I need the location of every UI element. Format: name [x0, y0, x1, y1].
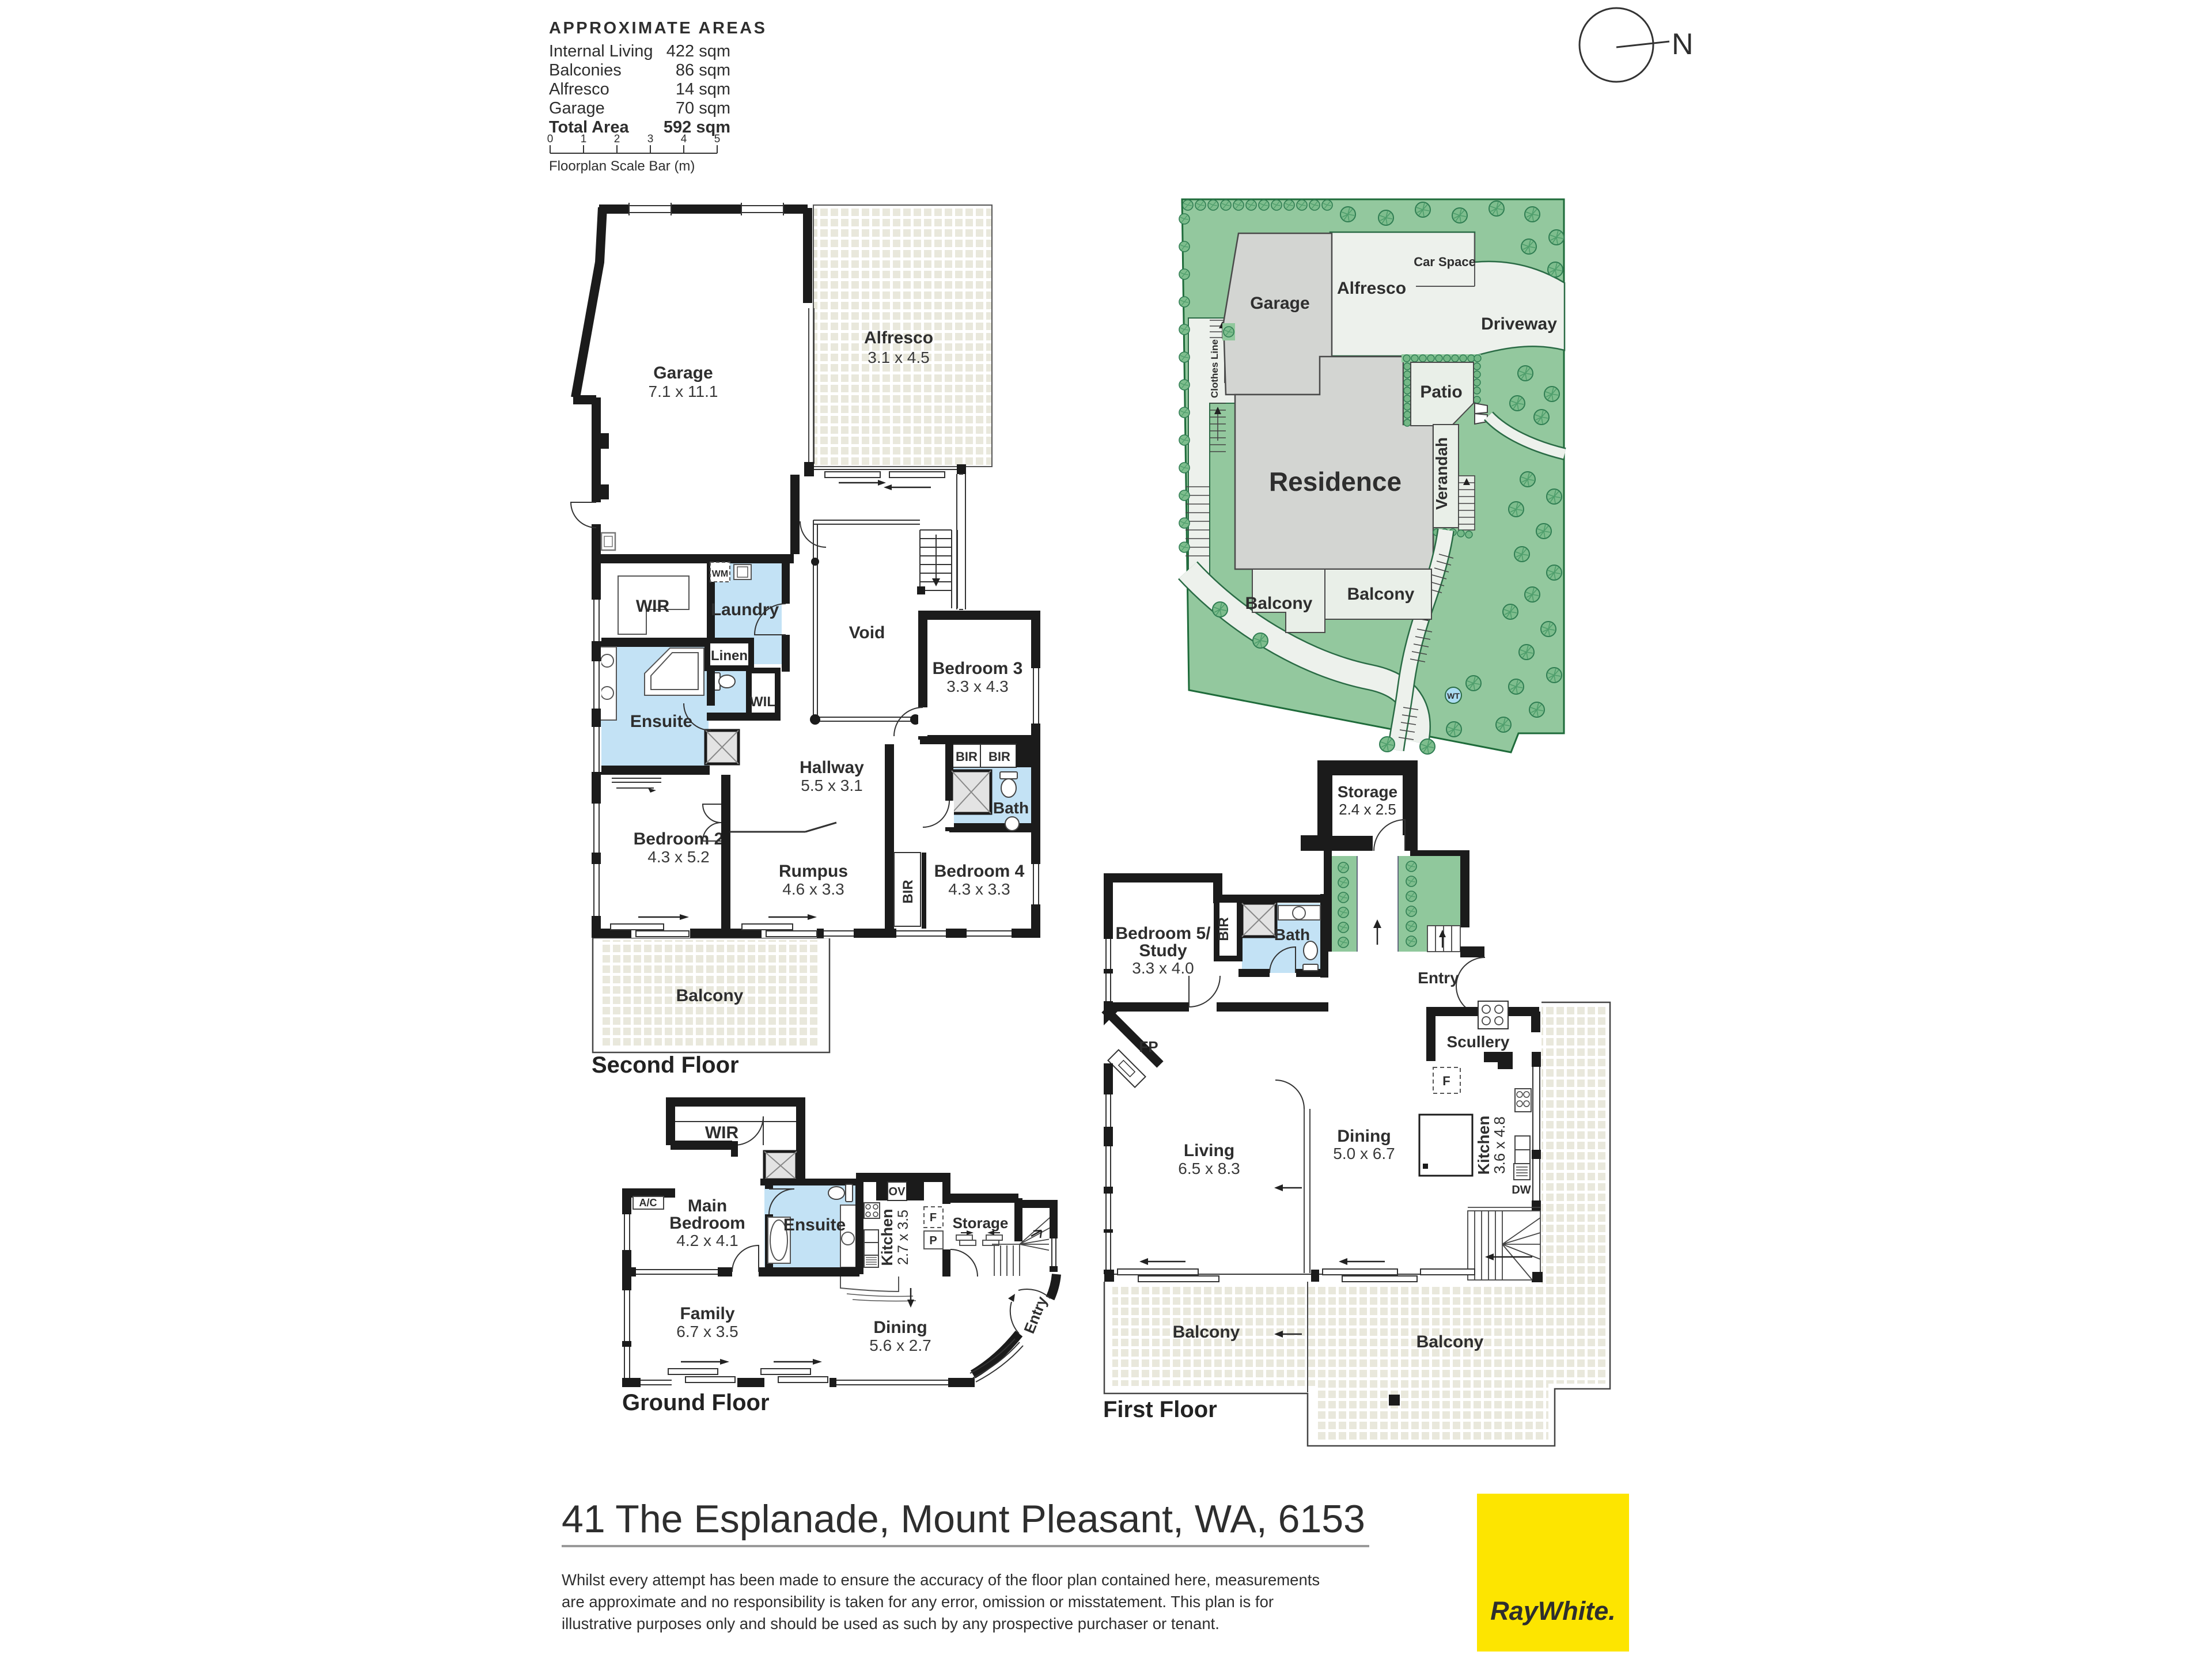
svg-text:Hallway: Hallway — [800, 758, 864, 777]
svg-text:P: P — [929, 1234, 937, 1247]
svg-text:Bedroom: Bedroom — [669, 1214, 745, 1233]
svg-text:Rumpus: Rumpus — [779, 862, 848, 881]
svg-text:592 sqm: 592 sqm — [664, 118, 730, 137]
svg-text:422 sqm: 422 sqm — [666, 42, 730, 60]
svg-text:Void: Void — [849, 623, 885, 642]
svg-text:Ground Floor: Ground Floor — [622, 1390, 770, 1415]
svg-text:Balcony: Balcony — [1347, 585, 1415, 604]
svg-text:F: F — [930, 1211, 937, 1224]
svg-text:Storage: Storage — [1338, 783, 1397, 801]
svg-text:WT: WT — [1447, 691, 1460, 700]
svg-text:WIL: WIL — [750, 694, 775, 710]
svg-text:BIR: BIR — [956, 749, 978, 764]
svg-text:41 The Esplanade, Mount Pleasa: 41 The Esplanade, Mount Pleasant, WA, 61… — [562, 1497, 1365, 1541]
svg-text:4.3 x 5.2: 4.3 x 5.2 — [647, 848, 709, 866]
svg-text:5.5 x 3.1: 5.5 x 3.1 — [801, 777, 862, 794]
svg-text:Dining: Dining — [1337, 1127, 1391, 1146]
svg-text:Dining: Dining — [873, 1318, 927, 1337]
svg-text:2.7 x 3.5: 2.7 x 3.5 — [895, 1210, 911, 1265]
svg-text:Living: Living — [1184, 1141, 1234, 1160]
svg-text:First Floor: First Floor — [1103, 1397, 1217, 1422]
svg-text:Bedroom 5/: Bedroom 5/ — [1115, 924, 1211, 943]
svg-text:7.1 x 11.1: 7.1 x 11.1 — [649, 382, 718, 400]
svg-text:Ensuite: Ensuite — [783, 1215, 846, 1234]
svg-text:Linen: Linen — [711, 648, 748, 664]
svg-text:6.5 x 8.3: 6.5 x 8.3 — [1178, 1160, 1240, 1177]
svg-text:3.3 x 4.3: 3.3 x 4.3 — [946, 677, 1008, 695]
svg-text:BIR: BIR — [1216, 917, 1232, 941]
svg-text:3: 3 — [647, 133, 654, 145]
svg-text:Internal Living: Internal Living — [549, 42, 653, 60]
svg-text:4.2 x 4.1: 4.2 x 4.1 — [676, 1232, 738, 1249]
svg-text:Bath: Bath — [1274, 926, 1310, 944]
svg-text:6.7 x 3.5: 6.7 x 3.5 — [676, 1323, 738, 1340]
svg-text:Car Space: Car Space — [1414, 255, 1476, 269]
svg-text:Balcony: Balcony — [1173, 1323, 1240, 1342]
svg-text:Balcony: Balcony — [1416, 1332, 1484, 1351]
svg-text:14 sqm: 14 sqm — [676, 80, 730, 99]
svg-text:Balcony: Balcony — [1245, 594, 1313, 613]
svg-text:5: 5 — [714, 133, 721, 145]
svg-text:Storage: Storage — [953, 1214, 1009, 1232]
svg-text:RayWhite.: RayWhite. — [1490, 1596, 1616, 1626]
svg-text:Family: Family — [680, 1304, 734, 1323]
svg-text:Kitchen: Kitchen — [1475, 1116, 1493, 1175]
svg-text:Entry: Entry — [1418, 969, 1459, 987]
svg-text:WIR: WIR — [705, 1123, 739, 1142]
svg-text:Main: Main — [688, 1196, 727, 1215]
svg-text:N: N — [1672, 28, 1694, 61]
svg-text:Garage: Garage — [1250, 294, 1309, 313]
svg-text:Scullery: Scullery — [1447, 1033, 1510, 1051]
svg-text:Bedroom 2: Bedroom 2 — [634, 829, 724, 849]
svg-text:2: 2 — [614, 133, 620, 145]
svg-text:86 sqm: 86 sqm — [676, 61, 730, 79]
svg-text:4.6 x 3.3: 4.6 x 3.3 — [782, 880, 844, 898]
svg-text:Alfresco: Alfresco — [549, 80, 609, 99]
svg-text:Entry: Entry — [1020, 1294, 1051, 1336]
svg-text:Second Floor: Second Floor — [592, 1052, 739, 1078]
svg-text:Whilst every attempt has been: Whilst every attempt has been made to en… — [562, 1571, 1320, 1589]
svg-text:Garage: Garage — [549, 99, 605, 118]
svg-text:4.3 x 3.3: 4.3 x 3.3 — [948, 880, 1010, 898]
svg-text:1: 1 — [581, 133, 587, 145]
svg-text:3.1 x 4.5: 3.1 x 4.5 — [868, 349, 929, 366]
svg-text:70 sqm: 70 sqm — [676, 99, 730, 118]
svg-text:Kitchen: Kitchen — [878, 1209, 896, 1266]
svg-text:Balcony: Balcony — [676, 986, 744, 1005]
svg-text:Ensuite: Ensuite — [630, 712, 692, 731]
svg-text:Garage: Garage — [653, 363, 713, 382]
svg-text:Bedroom 4: Bedroom 4 — [934, 862, 1025, 881]
svg-text:0: 0 — [547, 133, 554, 145]
svg-text:are approximate and no respons: are approximate and no responsibility is… — [562, 1593, 1274, 1611]
svg-text:illustrative purposes only and: illustrative purposes only and should be… — [562, 1615, 1219, 1633]
svg-text:Alfresco: Alfresco — [1337, 279, 1406, 298]
svg-text:Balconies: Balconies — [549, 61, 622, 79]
svg-text:BIR: BIR — [900, 880, 916, 903]
svg-text:Residence: Residence — [1269, 467, 1402, 497]
svg-text:2.4 x 2.5: 2.4 x 2.5 — [1339, 801, 1396, 818]
svg-text:Alfresco: Alfresco — [864, 328, 933, 347]
svg-text:WM: WM — [712, 569, 728, 579]
svg-text:Floorplan Scale Bar (m): Floorplan Scale Bar (m) — [549, 158, 695, 174]
svg-text:Clothes Line: Clothes Line — [1209, 339, 1220, 398]
svg-text:Study: Study — [1139, 941, 1187, 960]
svg-text:F: F — [1442, 1074, 1450, 1088]
svg-text:3.6 x 4.8: 3.6 x 4.8 — [1491, 1116, 1508, 1174]
svg-text:FP: FP — [1139, 1038, 1158, 1055]
svg-text:DW: DW — [1512, 1184, 1531, 1196]
svg-text:5.6 x 2.7: 5.6 x 2.7 — [869, 1336, 931, 1354]
svg-text:WIR: WIR — [636, 597, 670, 616]
svg-text:OV: OV — [889, 1185, 906, 1198]
svg-text:A/C: A/C — [639, 1197, 657, 1209]
svg-text:Laundry: Laundry — [711, 600, 779, 619]
svg-text:5.0 x 6.7: 5.0 x 6.7 — [1333, 1145, 1395, 1162]
svg-text:Verandah: Verandah — [1433, 437, 1450, 510]
svg-text:Patio: Patio — [1420, 382, 1462, 402]
svg-text:APPROXIMATE AREAS: APPROXIMATE AREAS — [549, 19, 767, 37]
svg-text:4: 4 — [681, 133, 687, 145]
svg-text:Bath: Bath — [993, 799, 1029, 817]
svg-text:3.3 x 4.0: 3.3 x 4.0 — [1132, 959, 1194, 977]
svg-text:Driveway: Driveway — [1481, 315, 1557, 334]
svg-text:Bedroom 3: Bedroom 3 — [933, 659, 1023, 678]
svg-text:BIR: BIR — [988, 749, 1010, 764]
